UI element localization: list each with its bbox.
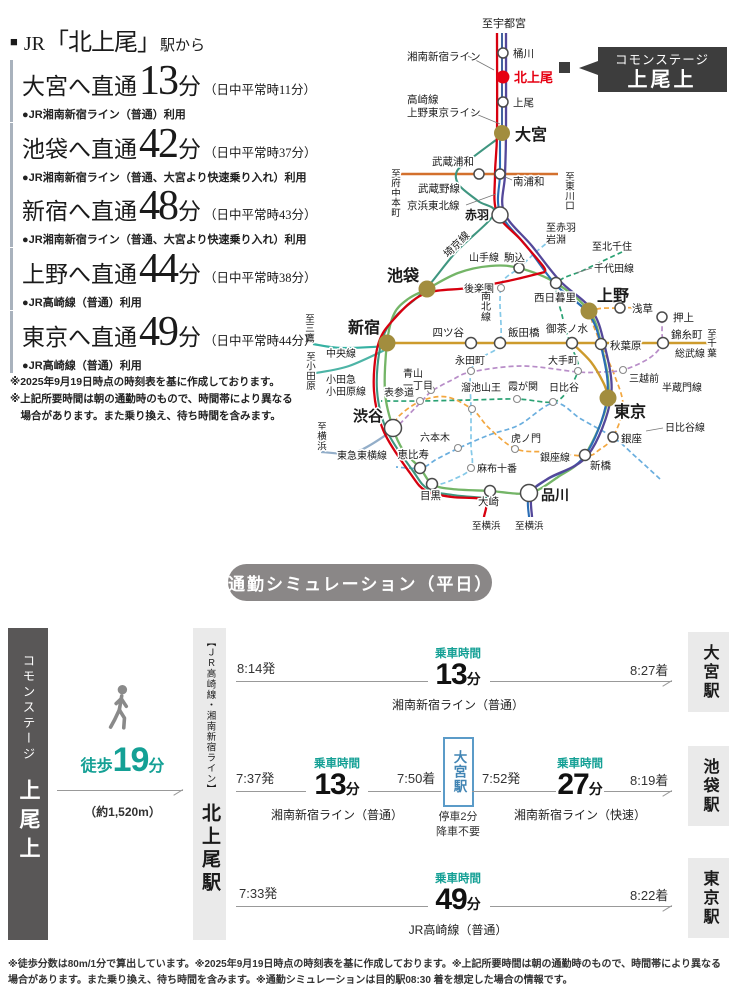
footnote-line: 場合があります。また乗り換え、待ち時間を含みます。※通勤シミュレーションは目的駅… [8, 973, 724, 989]
svg-text:埼京線: 埼京線 [441, 228, 473, 260]
svg-text:千代田線: 千代田線 [594, 262, 634, 275]
departure-time: 7:37発 [236, 768, 274, 787]
destination-name: 大宮へ直通 [22, 74, 137, 99]
svg-text:溜池山王: 溜池山王 [461, 381, 501, 394]
train-line-name: 湘南新宿ライン（普通） [360, 696, 556, 713]
minutes-unit: 分 [178, 137, 201, 162]
svg-text:青山: 青山 [403, 367, 423, 380]
ride-minutes: 13分 [398, 658, 518, 692]
svg-text:京浜東北線: 京浜東北線 [407, 199, 460, 212]
svg-text:上尾: 上尾 [513, 97, 534, 109]
station-name: 北上尾駅 [196, 803, 223, 895]
line-used-note: ●JR高崎線（普通）利用 [22, 294, 367, 310]
line-used-note: ●JR湘南新宿ライン（普通、大宮より快速乗り入れ）利用 [22, 231, 367, 247]
svg-text:銀座: 銀座 [621, 432, 642, 445]
destination-station-box: 大宮駅 [688, 632, 729, 712]
destination-name: 東京へ直通 [22, 325, 137, 350]
svg-text:南浦和: 南浦和 [513, 175, 545, 188]
route-line [368, 791, 441, 792]
minutes-unit: 分 [467, 896, 481, 912]
footnotes: ※徒歩分数は80m/1分で算出しています。※2025年9月19日時点の時刻表を基… [8, 957, 724, 989]
destination-headline: 東京へ直通49分（日中平常時44分） [22, 311, 367, 353]
callout-brand: コモンステージ [615, 53, 709, 67]
destination-headline: 大宮へ直通13分（日中平常時11分） [22, 60, 367, 102]
page-title: ■JR「北上尾」駅から [10, 22, 205, 57]
svg-text:半蔵門線: 半蔵門線 [662, 381, 702, 394]
minutes-unit: 分 [346, 781, 360, 797]
walking-person-icon [103, 683, 139, 731]
destination-row: 大宮へ直通13分（日中平常時11分） ●JR湘南新宿ライン（普通）利用 [10, 60, 367, 122]
svg-text:銀座線: 銀座線 [540, 451, 570, 464]
footnote-line: ※徒歩分数は80m/1分で算出しています。※2025年9月19日時点の時刻表を基… [8, 957, 724, 973]
destination-station: 大宮駅 [697, 644, 721, 701]
svg-text:御茶ノ水: 御茶ノ水 [546, 322, 588, 335]
offpeak-note: （日中平常時44分） [204, 334, 317, 348]
svg-text:浅草: 浅草 [632, 302, 653, 315]
svg-text:西日暮里: 西日暮里 [534, 291, 576, 304]
arrival-time: 7:50着 [397, 768, 435, 787]
origin-brand: コモンステージ [19, 654, 38, 763]
svg-text:至横浜: 至横浜 [472, 520, 501, 532]
svg-text:目黒: 目黒 [420, 490, 441, 502]
svg-text:永田町: 永田町 [455, 354, 485, 367]
svg-text:東急東横線: 東急東横線 [337, 449, 387, 462]
svg-text:至府中本町: 至府中本町 [391, 169, 401, 219]
route-line [472, 791, 556, 792]
destination-row: 東京へ直通49分（日中平常時44分） ●JR高崎線（普通）利用 [10, 311, 367, 373]
destination-headline: 上野へ直通44分（日中平常時38分） [22, 248, 367, 290]
minutes-unit: 分 [178, 74, 201, 99]
svg-text:一丁目: 一丁目 [403, 381, 433, 392]
svg-text:日比谷: 日比谷 [549, 382, 579, 394]
svg-text:至北千住: 至北千住 [592, 240, 632, 253]
svg-text:飯田橋: 飯田橋 [508, 326, 540, 339]
timetable-notes: ※2025年9月19日時点の時刻表を基に作成しております。 ※上記所要時間は朝の… [10, 374, 293, 424]
arrival-time: 8:22着 [630, 885, 668, 904]
departure-time: 7:33発 [239, 883, 277, 902]
line-used-note: ●JR湘南新宿ライン（普通、大宮より快速乗り入れ）利用 [22, 169, 367, 185]
transfer-note: 降車不要 [415, 825, 501, 840]
departure-time: 7:52発 [482, 768, 520, 787]
svg-text:総武線: 総武線 [675, 347, 705, 360]
destination-minutes: 48 [139, 183, 177, 229]
offpeak-note: （日中平常時43分） [204, 208, 317, 222]
svg-text:品川: 品川 [541, 487, 569, 503]
svg-text:南北線: 南北線 [481, 290, 491, 323]
note-line: ※2025年9月19日時点の時刻表を基に作成しております。 [10, 374, 293, 391]
svg-text:四ツ谷: 四ツ谷 [433, 327, 465, 339]
title-jr: JR [24, 33, 45, 55]
minutes-unit: 分 [178, 199, 201, 224]
svg-text:至東川口: 至東川口 [565, 172, 575, 212]
train-line-name: 湘南新宿ライン（普通） [254, 806, 420, 823]
destination-station: 池袋駅 [697, 758, 721, 815]
walk-label: 徒歩 [81, 758, 113, 775]
departure-time: 8:14発 [237, 658, 275, 677]
origin-name: 上尾上 [13, 779, 43, 866]
destination-minutes: 49 [139, 309, 177, 355]
svg-text:武蔵野線: 武蔵野線 [418, 182, 460, 195]
walk-time: 徒歩19分 [50, 741, 195, 780]
route-line [236, 681, 428, 682]
minutes-unit: 分 [589, 781, 603, 797]
svg-text:虎ノ門: 虎ノ門 [511, 433, 541, 445]
svg-text:秋葉原: 秋葉原 [610, 339, 642, 352]
section-badge: 通勤シミュレーション（平日） [228, 564, 492, 601]
ride-minutes: 13分 [287, 768, 387, 802]
svg-text:麻布十番: 麻布十番 [477, 462, 517, 475]
svg-text:恵比寿: 恵比寿 [398, 448, 430, 461]
title-station: 「北上尾」 [45, 30, 160, 56]
departure-station-bar: 【ＪＲ高崎線・湘南新宿ライン】 北上尾駅 [193, 628, 226, 940]
transfer-note: 停車2分 [415, 810, 501, 825]
svg-text:大宮: 大宮 [515, 125, 547, 144]
route-line [236, 906, 428, 907]
transfer-station-box: 大宮駅 [443, 737, 474, 807]
svg-text:桶川: 桶川 [513, 47, 534, 60]
svg-text:湘南新宿ライン: 湘南新宿ライン [407, 50, 481, 63]
arrival-time: 8:27着 [630, 660, 668, 679]
route-line [604, 791, 672, 792]
destination-station-box: 東京駅 [688, 858, 729, 938]
minutes-value: 13 [314, 768, 345, 801]
svg-text:池袋: 池袋 [387, 266, 420, 285]
destination-row: 新宿へ直通48分（日中平常時43分） ●JR湘南新宿ライン（普通、大宮より快速乗… [10, 185, 367, 247]
svg-text:至赤羽: 至赤羽 [546, 222, 576, 234]
svg-text:北上尾: 北上尾 [514, 70, 553, 85]
transfer-station: 大宮駅 [449, 750, 469, 794]
svg-text:三越前: 三越前 [629, 372, 659, 385]
destination-row: 上野へ直通44分（日中平常時38分） ●JR高崎線（普通）利用 [10, 248, 367, 310]
destination-row: 池袋へ直通42分（日中平常時37分） ●JR湘南新宿ライン（普通、大宮より快速乗… [10, 123, 367, 185]
destination-headline: 池袋へ直通42分（日中平常時37分） [22, 123, 367, 165]
offpeak-note: （日中平常時11分） [204, 83, 316, 97]
svg-text:小田原線: 小田原線 [326, 385, 366, 398]
destination-minutes: 44 [139, 246, 177, 292]
arrival-time: 8:19着 [630, 770, 668, 789]
svg-text:武蔵浦和: 武蔵浦和 [432, 155, 474, 168]
train-line-name: JR高崎線（普通） [380, 921, 536, 938]
callout-name: 上尾上 [628, 68, 697, 91]
flyer-page: 桶川北上尾上尾大宮武蔵浦和南浦和赤羽駒込西日暮里上野浅草押上池袋後楽園新宿四ツ谷… [0, 0, 729, 1000]
route-line [236, 791, 306, 792]
svg-text:押上: 押上 [673, 311, 694, 324]
ride-minutes: 27分 [530, 768, 630, 802]
svg-text:霞が関: 霞が関 [508, 380, 538, 393]
destination-minutes: 13 [139, 58, 177, 104]
minutes-value: 27 [557, 768, 588, 801]
svg-text:大崎: 大崎 [478, 495, 499, 508]
svg-text:至横浜: 至横浜 [317, 422, 327, 452]
route-line [490, 906, 672, 907]
minutes-unit: 分 [178, 262, 201, 287]
svg-text:至横浜: 至横浜 [515, 520, 544, 532]
walk-distance: （約1,520m） [50, 803, 195, 820]
svg-text:小田急: 小田急 [326, 373, 356, 386]
offpeak-note: （日中平常時37分） [204, 146, 317, 160]
walk-minutes: 19 [113, 741, 149, 779]
note-line: 場合があります。また乗り換え、待ち時間を含みます。 [10, 408, 293, 425]
offpeak-note: （日中平常時38分） [204, 271, 317, 285]
svg-text:六本木: 六本木 [420, 431, 450, 444]
svg-text:東京: 東京 [614, 402, 646, 421]
line-used-note: ●JR湘南新宿ライン（普通）利用 [22, 106, 367, 122]
minutes-unit: 分 [178, 325, 201, 350]
note-line: ※上記所要時間は朝の通勤時のもので、時間帯により異なる [10, 391, 293, 408]
ride-minutes: 49分 [398, 883, 518, 917]
destination-station-box: 池袋駅 [688, 746, 729, 826]
line-used-note: ●JR高崎線（普通）利用 [22, 357, 367, 373]
svg-text:錦糸町: 錦糸町 [671, 328, 703, 341]
destination-name: 上野へ直通 [22, 262, 137, 287]
station-lines: 【ＪＲ高崎線・湘南新宿ライン】 [203, 637, 217, 795]
svg-text:至千葉: 至千葉 [707, 329, 717, 359]
transfer-notes: 停車2分 降車不要 [415, 810, 501, 840]
origin-bar: コモンステージ 上尾上 [8, 628, 48, 940]
destination-headline: 新宿へ直通48分（日中平常時43分） [22, 185, 367, 227]
walk-unit: 分 [148, 758, 164, 775]
svg-text:上野: 上野 [597, 287, 629, 305]
destination-station: 東京駅 [697, 870, 721, 927]
destination-minutes: 42 [139, 121, 177, 167]
walk-arrow [57, 790, 183, 791]
svg-text:岩淵: 岩淵 [546, 233, 566, 246]
svg-text:上野東京ライン: 上野東京ライン [407, 106, 481, 119]
svg-text:高崎線: 高崎線 [407, 93, 439, 106]
route-line [490, 681, 672, 682]
square-bullet-icon: ■ [10, 34, 18, 49]
svg-text:至宇都宮: 至宇都宮 [482, 16, 526, 30]
svg-text:渋谷: 渋谷 [353, 407, 384, 425]
svg-text:山手線: 山手線 [469, 251, 499, 264]
destination-name: 新宿へ直通 [22, 199, 137, 224]
destination-name: 池袋へ直通 [22, 137, 137, 162]
minutes-unit: 分 [467, 671, 481, 687]
svg-text:赤羽: 赤羽 [465, 207, 489, 222]
minutes-value: 13 [435, 658, 466, 691]
train-line-name: 湘南新宿ライン（快速） [497, 806, 663, 823]
svg-text:新橋: 新橋 [590, 459, 611, 472]
svg-text:駒込: 駒込 [504, 252, 525, 264]
svg-text:大手町: 大手町 [548, 354, 578, 367]
minutes-value: 49 [435, 883, 466, 916]
title-suffix: 駅から [160, 38, 205, 54]
svg-text:日比谷線: 日比谷線 [665, 421, 705, 434]
